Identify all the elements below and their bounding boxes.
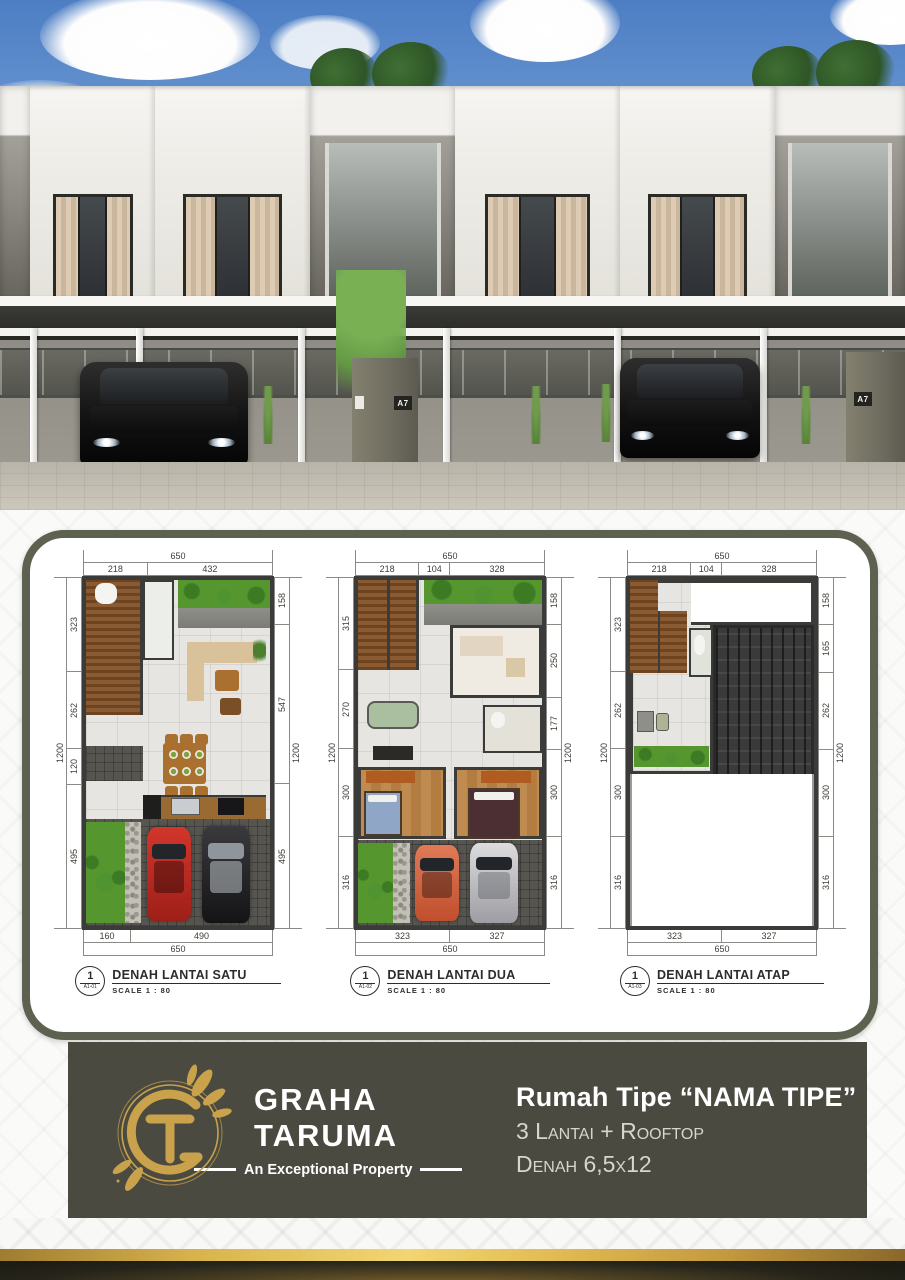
dim-segment: 316 — [819, 836, 833, 929]
armchair — [220, 698, 240, 715]
plate — [182, 750, 191, 759]
plan-title: DENAH LANTAI ATAP — [657, 968, 824, 984]
townhouse-unit — [620, 86, 775, 306]
void-front — [691, 580, 814, 625]
outdoor-table — [637, 711, 654, 732]
window-glass — [78, 197, 107, 303]
dim-segment: 218 — [83, 563, 147, 575]
plan-sheet-code: A1-01 — [84, 984, 97, 991]
plan-1-label: 1 A1-01 DENAH LANTAI SATU SCALE 1 : 80 — [54, 956, 302, 998]
dim-bottom-segments: 323327 — [627, 930, 817, 943]
brand-name-line2: TARUMA — [254, 1118, 464, 1154]
plan-sheet-code: A1-02 — [359, 984, 372, 991]
dim-label: 270 — [342, 702, 351, 717]
orange-car — [415, 845, 459, 921]
plan-title: DENAH LANTAI DUA — [387, 968, 549, 984]
gt-monogram-icon — [98, 1055, 248, 1205]
curtain — [56, 197, 79, 303]
sofa — [460, 636, 503, 656]
bed-single — [364, 791, 403, 836]
dim-segment: 300 — [339, 748, 353, 836]
dim-segment: 328 — [449, 563, 545, 575]
dim-top-segments: 218432 — [83, 563, 273, 576]
silver-car — [470, 843, 518, 923]
dim-label: 218 — [652, 565, 667, 575]
footer-bar — [0, 1261, 905, 1280]
curtain — [186, 197, 215, 303]
gravel-strip — [393, 843, 410, 923]
dim-label: 104 — [699, 565, 714, 575]
paved-ground — [0, 462, 905, 510]
dim-label: 323 — [70, 617, 79, 632]
canopy-fascia — [0, 296, 905, 306]
dim-label: 1200 — [564, 743, 573, 763]
stove — [218, 798, 244, 815]
carport-garden — [358, 843, 393, 923]
plan-number-circle: 1 A1-03 — [620, 966, 650, 996]
dim-segment: 262 — [67, 671, 81, 748]
window-glass — [519, 197, 557, 303]
dim-top-total: 650 — [627, 550, 817, 563]
carport-post — [30, 328, 37, 462]
house-floors-line: 3 Lantai + Rooftop — [516, 1117, 856, 1146]
dim-label: 316 — [822, 875, 831, 890]
wardrobe — [481, 771, 530, 783]
plan-scale: SCALE 1 : 80 — [112, 984, 281, 995]
dining-table — [163, 743, 205, 785]
plate — [169, 767, 178, 776]
dim-right-segments: 158250177300316 — [546, 577, 561, 929]
dim-label: 495 — [70, 849, 79, 864]
wardrobe — [366, 771, 415, 783]
dim-segment: 316 — [547, 836, 561, 929]
car-headlight — [93, 438, 120, 447]
terrace-path — [178, 608, 270, 629]
dim-right-total: 1200 — [289, 577, 302, 929]
dim-top-total: 650 — [83, 550, 273, 563]
dim-segment: 270 — [339, 669, 353, 748]
dim-label: 650 — [442, 945, 457, 955]
chair — [165, 734, 178, 745]
dim-label: 323 — [395, 932, 410, 942]
floor-plan-1: 650 218432 1200 323262120495 — [54, 550, 302, 998]
curtain — [556, 197, 587, 303]
dim-segment: 218 — [627, 563, 690, 575]
dim-segment: 432 — [147, 563, 273, 575]
dim-label: 495 — [278, 849, 287, 864]
dim-label: 165 — [822, 641, 831, 656]
dim-label: 547 — [278, 697, 287, 712]
dim-label: 158 — [822, 593, 831, 608]
dim-label: 650 — [170, 945, 185, 955]
dim-label: 650 — [714, 945, 729, 955]
window-glass — [680, 197, 716, 303]
plan-number-circle: 1 A1-01 — [75, 966, 105, 996]
window — [183, 194, 282, 306]
dim-bottom-total: 650 — [83, 943, 273, 956]
plan-scale: SCALE 1 : 80 — [657, 984, 824, 995]
plant — [600, 384, 612, 442]
tagline-dash — [420, 1168, 462, 1171]
floor-plan-2: 650 218104328 1200 315270300316 — [326, 550, 574, 998]
dim-segment: 120 — [67, 748, 81, 784]
red-car — [147, 827, 191, 920]
house-type-title: Rumah Tipe “NAMA TIPE” — [516, 1082, 856, 1113]
plan-number: 1 — [80, 971, 100, 984]
dim-segment: 328 — [721, 563, 817, 575]
car-headlight — [726, 431, 748, 440]
carport-post — [760, 328, 767, 462]
hero-render: A7 A7 — [0, 0, 905, 510]
dim-segment: 160 — [83, 930, 130, 942]
dim-segment: 218 — [355, 563, 418, 575]
dim-segment: 323 — [611, 577, 625, 671]
cloud — [830, 0, 905, 45]
gold-divider — [0, 1249, 905, 1261]
dim-segment: 495 — [275, 783, 289, 929]
dim-label: 328 — [490, 565, 505, 575]
dim-segment: 104 — [418, 563, 449, 575]
plan-2-drawing — [354, 576, 546, 930]
kitchen-cabinet — [143, 795, 161, 819]
dim-label: 177 — [550, 716, 559, 731]
townhouse-unit-gray — [0, 86, 30, 306]
entry-pillar: A7 — [846, 352, 905, 462]
dim-label: 262 — [614, 703, 623, 718]
dim-label: 650 — [170, 552, 185, 562]
brand-logo — [98, 1055, 248, 1205]
dim-segment: 300 — [611, 748, 625, 836]
property-flyer: A7 A7 650 — [0, 0, 905, 1280]
unit-sign — [355, 396, 364, 409]
dim-label: 323 — [614, 617, 623, 632]
unit-plaque-label: A7 — [857, 395, 868, 404]
dim-left-segments: 315270300316 — [339, 577, 354, 929]
brand-name: GRAHA TARUMA An Exceptional Property — [254, 1082, 464, 1177]
townhouse-unit — [155, 86, 310, 306]
dim-label: 1200 — [56, 743, 65, 763]
unit-plaque: A7 — [394, 396, 412, 410]
dim-left-total: 1200 — [326, 577, 339, 929]
gravel-strip — [125, 822, 142, 922]
dim-segment: 250 — [547, 624, 561, 697]
unit-plaque: A7 — [854, 392, 872, 406]
dim-left-segments: 323262300316 — [611, 577, 626, 929]
townhouse-unit — [455, 86, 620, 306]
plan-number: 1 — [625, 971, 645, 984]
black-car — [620, 358, 760, 458]
sofa — [187, 642, 204, 701]
dim-segment: 495 — [67, 784, 81, 929]
bathroom — [143, 580, 174, 660]
dim-segment: 300 — [547, 749, 561, 836]
dim-label: 160 — [100, 932, 115, 942]
dim-segment: 158 — [275, 577, 289, 624]
dim-label: 262 — [70, 703, 79, 718]
townhouse-unit — [30, 86, 155, 306]
curtain — [715, 197, 744, 303]
car-hood — [628, 400, 751, 426]
floor-plans-card: 650 218432 1200 323262120495 — [22, 530, 878, 1040]
dim-right-segments: 158165262300316 — [818, 577, 833, 929]
dim-label: 323 — [667, 932, 682, 942]
stair-landing — [658, 611, 687, 673]
stairs — [630, 580, 658, 673]
dim-label: 300 — [550, 785, 559, 800]
house-size-line: Denah 6,5x12 — [516, 1150, 856, 1179]
dim-label: 300 — [614, 785, 623, 800]
dim-segment: 158 — [819, 577, 833, 624]
indoor-plant — [253, 635, 266, 666]
plan-2-label: 1 A1-02 DENAH LANTAI DUA SCALE 1 : 80 — [326, 956, 574, 998]
car-hood — [90, 406, 238, 433]
curtain — [488, 197, 519, 303]
window-glass — [215, 197, 251, 303]
dim-label: 300 — [342, 785, 351, 800]
black-car-plan — [202, 826, 250, 923]
outdoor-chair — [656, 713, 669, 730]
dim-segment: 327 — [449, 930, 545, 942]
plate — [169, 750, 178, 759]
dim-label: 650 — [442, 552, 457, 562]
car-cabin — [637, 364, 743, 398]
dim-label: 327 — [489, 932, 504, 942]
toilet — [491, 712, 505, 728]
dim-label: 300 — [822, 785, 831, 800]
dim-right-total: 1200 — [561, 577, 574, 929]
dim-label: 315 — [342, 616, 351, 631]
dim-label: 120 — [70, 759, 79, 774]
plate — [195, 767, 204, 776]
plan-1-drawing — [82, 576, 274, 930]
pattern-strip — [0, 1218, 905, 1249]
dim-segment: 547 — [275, 624, 289, 784]
plan-scale: SCALE 1 : 80 — [387, 984, 549, 995]
window — [53, 194, 133, 306]
dim-label: 327 — [761, 932, 776, 942]
plant — [530, 386, 542, 444]
unit-plaque-label: A7 — [397, 399, 408, 408]
dim-label: 158 — [550, 593, 559, 608]
coffee-table — [215, 670, 239, 691]
dim-left-segments: 323262120495 — [67, 577, 82, 929]
curtain — [651, 197, 680, 303]
dim-bottom-segments: 160490 — [83, 930, 273, 943]
townhouse-unit-gray — [775, 86, 905, 306]
dim-segment: 323 — [355, 930, 449, 942]
dim-label: 1200 — [836, 743, 845, 763]
dim-segment: 316 — [339, 836, 353, 929]
curtain — [107, 197, 130, 303]
brand-name-line1: GRAHA — [254, 1082, 464, 1118]
dim-label: 218 — [380, 565, 395, 575]
dim-bottom-total: 650 — [355, 943, 545, 956]
window — [648, 194, 747, 306]
dim-segment: 490 — [130, 930, 273, 942]
dim-label: 250 — [550, 653, 559, 668]
dim-right-total: 1200 — [833, 577, 846, 929]
dim-segment: 262 — [819, 672, 833, 748]
garden-strip — [424, 580, 542, 604]
curtain — [250, 197, 279, 303]
kitchen-sink — [171, 798, 200, 815]
dim-top-segments: 218104328 — [627, 563, 817, 576]
brand-panel: GRAHA TARUMA An Exceptional Property Rum… — [68, 1042, 867, 1218]
dim-label: 432 — [202, 565, 217, 575]
plan-sheet-code: A1-03 — [628, 984, 641, 991]
carport-post — [443, 328, 450, 462]
vanity — [373, 746, 413, 760]
rooftop-bathroom — [689, 628, 713, 676]
entry-pillar: A7 — [352, 358, 418, 462]
dim-top-segments: 218104328 — [355, 563, 545, 576]
plan-3-label: 1 A1-03 DENAH LANTAI ATAP SCALE 1 : 80 — [598, 956, 846, 998]
dim-label: 328 — [762, 565, 777, 575]
stair-rail — [387, 580, 391, 670]
dim-label: 1200 — [292, 743, 301, 763]
cabinet — [506, 658, 525, 677]
floor-plan-3: 650 218104328 1200 323262300316 15816526… — [598, 550, 846, 998]
car-headlight — [208, 438, 235, 447]
chair — [195, 734, 208, 745]
dim-bottom-segments: 323327 — [355, 930, 545, 943]
plate — [195, 750, 204, 759]
chair — [180, 734, 193, 745]
dim-label: 490 — [194, 932, 209, 942]
garden-strip — [178, 580, 270, 608]
plate — [182, 767, 191, 776]
dim-segment: 315 — [339, 577, 353, 669]
family-room — [450, 625, 542, 698]
dim-top-total: 650 — [355, 550, 545, 563]
plan-3-drawing — [626, 576, 818, 930]
plant — [262, 386, 274, 444]
dim-segment: 165 — [819, 624, 833, 673]
dim-label: 262 — [822, 703, 831, 718]
black-car — [80, 362, 248, 466]
glass-panel — [788, 143, 892, 306]
dim-segment: 300 — [819, 749, 833, 836]
dim-segment: 323 — [627, 930, 721, 942]
townhouse-facade-row — [0, 86, 905, 306]
dim-right-segments: 158547495 — [274, 577, 289, 929]
dim-label: 1200 — [600, 743, 609, 763]
dim-label: 158 — [278, 593, 287, 608]
dim-label: 316 — [342, 875, 351, 890]
tagline-text: An Exceptional Property — [244, 1162, 412, 1178]
dim-segment: 316 — [611, 836, 625, 929]
plant — [800, 386, 812, 444]
dim-segment: 262 — [611, 671, 625, 748]
bed-double — [468, 788, 520, 840]
carport-post — [298, 328, 305, 462]
dim-left-total: 1200 — [54, 577, 67, 929]
bathtub — [367, 701, 419, 729]
plan-number: 1 — [355, 971, 375, 984]
car-cabin — [100, 368, 228, 403]
dim-label: 104 — [427, 565, 442, 575]
dim-label: 316 — [550, 875, 559, 890]
cloud — [40, 0, 260, 80]
dim-segment: 158 — [547, 577, 561, 624]
toilet — [95, 583, 117, 604]
dim-label: 1200 — [328, 743, 337, 763]
house-type-info: Rumah Tipe “NAMA TIPE” 3 Lantai + Roofto… — [516, 1082, 856, 1179]
dim-label: 316 — [614, 875, 623, 890]
void-rear — [630, 774, 814, 926]
dim-segment: 327 — [721, 930, 817, 942]
dim-segment: 323 — [67, 577, 81, 671]
dim-bottom-total: 650 — [627, 943, 817, 956]
carport-garden — [86, 822, 125, 922]
dim-segment: 177 — [547, 697, 561, 749]
bathroom — [483, 705, 542, 753]
toilet — [694, 635, 705, 655]
car-headlight — [631, 431, 653, 440]
dim-left-total: 1200 — [598, 577, 611, 929]
cloud — [470, 0, 620, 62]
plan-title: DENAH LANTAI SATU — [112, 968, 281, 984]
side-passage — [86, 746, 143, 781]
dim-segment: 104 — [690, 563, 721, 575]
plan-number-circle: 1 A1-02 — [350, 966, 380, 996]
window — [485, 194, 591, 306]
balcony-path — [424, 604, 542, 625]
dim-label: 650 — [714, 552, 729, 562]
dim-label: 218 — [108, 565, 123, 575]
planter-strip — [634, 746, 709, 767]
